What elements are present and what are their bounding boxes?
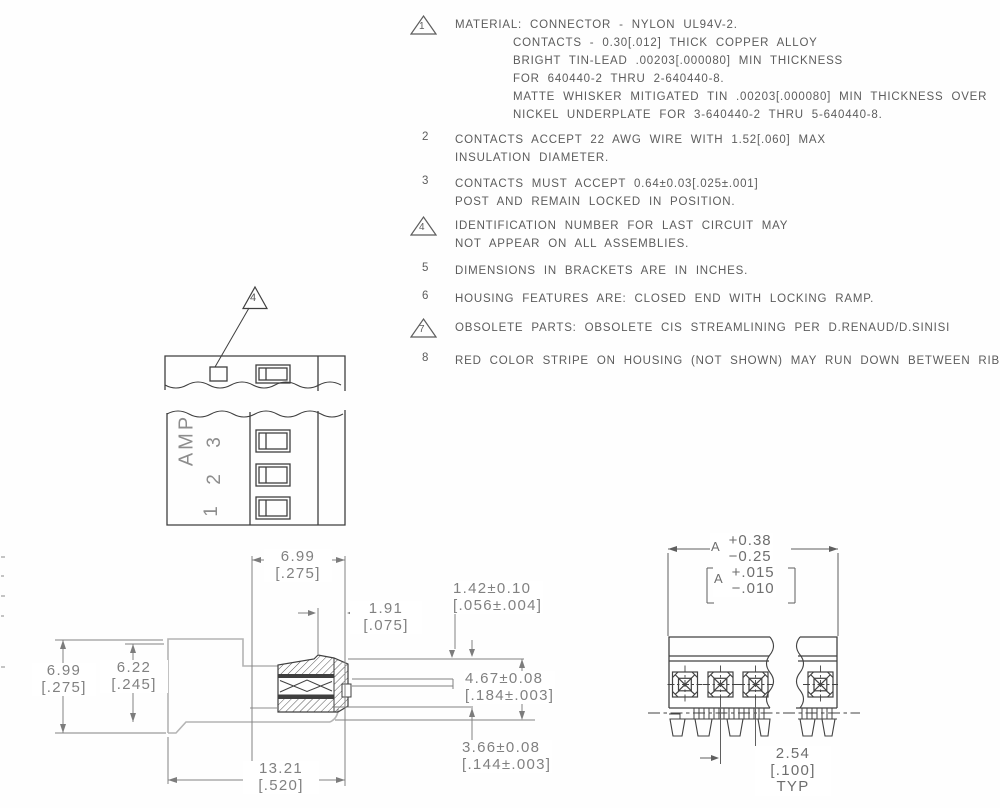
front-view [648,637,860,736]
dim-a-in-label: A [714,565,732,588]
note-number: 3 [410,175,455,187]
circuit-number-3: 3 [204,434,226,448]
circuit-callout-flag-number: 4 [250,292,256,304]
dim-a-minus: −0.25 [729,549,772,565]
dim-width-top: 6.99 [.275] [264,549,332,582]
dim-length-mm: 13.21 [244,761,318,778]
housing-brand-label: AMP [176,414,199,466]
dim-body-in: [.245] [101,677,167,694]
dim-lower-mm: 3.66±0.08 [462,740,551,757]
dim-width-top-in: [.275] [265,566,331,583]
dim-height-in: [.275] [33,680,95,697]
note-8: 8RED COLOR STRIPE ON HOUSING (NOT SHOWN)… [410,352,998,370]
dim-pitch-mm: 2.54 [756,746,830,763]
dim-width-top-mm: 6.99 [265,549,331,566]
dim-lower: 3.66±0.08 [.144±.003] [461,740,552,773]
dim-a-label: A [711,533,729,556]
dim-a: A +0.38 −0.25 [710,533,773,565]
side-view-contact-section [278,655,351,712]
dim-height-mm: 6.99 [33,663,95,680]
dim-offset: 1.91 [.075] [350,601,422,634]
note-number: 6 [410,290,455,302]
dim-lower-in: [.144±.003] [462,757,551,774]
dim-mid: 4.67±0.08 [.184±.003] [464,671,555,704]
dim-a-inches: A +.015 −.010 [713,565,776,597]
dim-height: 6.99 [.275] [32,663,96,696]
dim-tab-in: [.056±.004] [453,598,542,615]
note-text: RED COLOR STRIPE ON HOUSING (NOT SHOWN) … [455,352,1000,370]
note-1: 1MATERIAL: CONNECTOR - NYLON UL94V-2.CON… [410,16,998,124]
note-number: 5 [410,262,455,274]
note-text: IDENTIFICATION NUMBER FOR LAST CIRCUIT M… [455,217,998,253]
top-view [165,287,345,525]
dim-pitch-in: [.100] [756,763,830,780]
note-flag-triangle-icon: 7 [410,319,455,339]
dim-a-in-plus: +.015 [732,565,775,581]
dim-a-plus: +0.38 [729,533,772,549]
dim-offset-in: [.075] [351,618,421,635]
circuit-number-2: 2 [204,471,226,485]
dim-length: 13.21 [.520] [243,761,319,794]
dim-tab-mm: 1.42±0.10 [453,581,542,598]
note-text: CONTACTS ACCEPT 22 AWG WIRE WITH 1.52[.0… [455,131,998,167]
note-text: HOUSING FEATURES ARE: CLOSED END WITH LO… [455,290,998,308]
dim-body: 6.22 [.245] [100,660,168,693]
dim-body-mm: 6.22 [101,660,167,677]
note-text: DIMENSIONS IN BRACKETS ARE IN INCHES. [455,262,998,280]
note-text: CONTACTS MUST ACCEPT 0.64±0.03[.025±.001… [455,175,998,211]
note-text: MATERIAL: CONNECTOR - NYLON UL94V-2.CONT… [455,16,998,124]
note-6: 6HOUSING FEATURES ARE: CLOSED END WITH L… [410,290,998,308]
circuit-number-1: 1 [201,503,223,517]
note-2: 2CONTACTS ACCEPT 22 AWG WIRE WITH 1.52[.… [410,131,998,167]
side-view-profile [168,639,338,733]
note-text: OBSOLETE PARTS: OBSOLETE CIS STREAMLININ… [455,319,998,337]
note-number: 8 [410,352,455,364]
dim-length-in: [.520] [244,778,318,795]
note-4: 4IDENTIFICATION NUMBER FOR LAST CIRCUIT … [410,217,998,253]
dim-tab: 1.42±0.10 [.056±.004] [452,581,543,614]
note-flag-triangle-icon: 4 [410,217,455,237]
dim-pitch: 2.54 [.100] TYP [755,746,831,796]
dim-mid-in: [.184±.003] [465,688,554,705]
note-7: 7OBSOLETE PARTS: OBSOLETE CIS STREAMLINI… [410,319,998,339]
dim-mid-mm: 4.67±0.08 [465,671,554,688]
notes-list: 1MATERIAL: CONNECTOR - NYLON UL94V-2.CON… [410,16,998,379]
dim-a-in-minus: −.010 [732,581,775,597]
note-flag-triangle-icon: 1 [410,16,455,36]
dim-pitch-typ: TYP [756,779,830,796]
drawing-sheet: 1MATERIAL: CONNECTOR - NYLON UL94V-2.CON… [0,0,1000,808]
scan-artifacts [1,556,5,668]
note-number: 2 [410,131,455,143]
dim-offset-mm: 1.91 [351,601,421,618]
note-5: 5DIMENSIONS IN BRACKETS ARE IN INCHES. [410,262,998,280]
note-3: 3CONTACTS MUST ACCEPT 0.64±0.03[.025±.00… [410,175,998,211]
